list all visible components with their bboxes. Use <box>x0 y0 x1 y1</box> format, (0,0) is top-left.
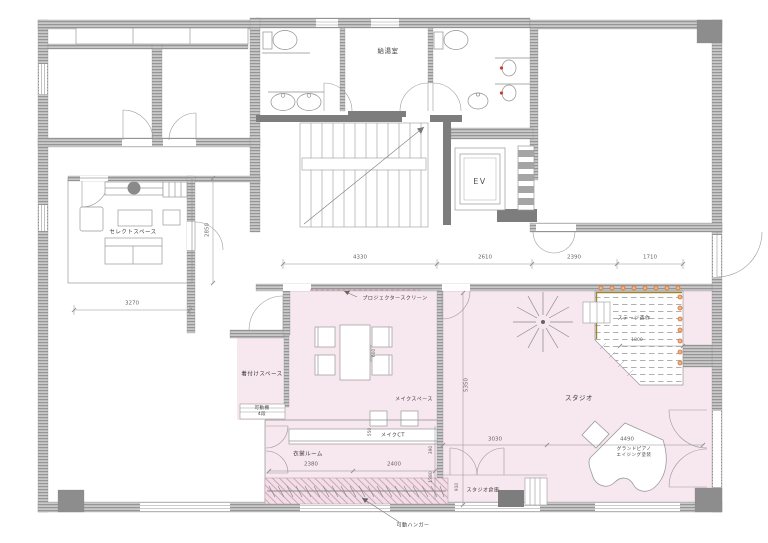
dim-1800: 1800 <box>631 339 642 344</box>
label-movable-shelf: 可動棚 <box>255 407 270 412</box>
coffee-table <box>118 210 152 226</box>
label-projector-screen: プロジェクタースクリーン <box>362 297 427 302</box>
dim-3270: 3270 <box>125 301 139 307</box>
dim-4490: 4490 <box>620 437 634 443</box>
label-shelf-tiers: 4段 <box>258 413 266 418</box>
dim-5350: 5350 <box>464 378 470 392</box>
urinal-1 <box>502 60 516 76</box>
dim-910: 910 <box>456 483 461 492</box>
staircase <box>300 123 428 227</box>
dim-1710: 1710 <box>643 255 657 261</box>
dim-2400: 2400 <box>387 462 401 468</box>
makeup-counter <box>289 429 437 444</box>
dim-600: 600 <box>373 349 378 358</box>
room-label-storage: スタジオ倉庫 <box>466 489 499 494</box>
room-label-makeup-space: メイクスペース <box>395 398 433 403</box>
dim-2390: 2390 <box>567 255 581 261</box>
label-movable-hanger: 可動ハンガー <box>396 524 429 529</box>
dim-2380: 2380 <box>304 462 318 468</box>
basin-tap-1 <box>281 94 285 98</box>
room-label-costume: 衣裳ルーム <box>293 452 323 458</box>
floor-plan: 給湯室 EV セレクトスペース 着付けスペース 可動棚 4段 衣裳ルーム メイク… <box>0 0 768 543</box>
armchair <box>80 207 103 231</box>
sofa <box>105 238 162 264</box>
dim-4330: 4330 <box>353 255 367 261</box>
label-stage: ステージ造作 <box>618 317 651 322</box>
toilet-bowl-2 <box>444 31 468 50</box>
room-label-dressing: 着付けスペース <box>241 372 282 378</box>
urinal-valve-1 <box>500 66 503 69</box>
elevator-shaft <box>455 146 534 210</box>
floor-plan-drawing <box>0 0 768 543</box>
dim-390: 390 <box>430 446 435 455</box>
movable-hanger-zone <box>265 478 448 522</box>
toilet-tank-2 <box>434 32 443 49</box>
stool <box>370 411 387 426</box>
closet-band <box>76 28 248 44</box>
room-label-select-space: セレクトスペース <box>109 230 156 236</box>
dim-1380: 1380 <box>430 471 435 482</box>
urinal-2 <box>502 85 516 101</box>
dim-3030: 3030 <box>488 437 502 443</box>
label-piano-note: エイジング塗装 <box>617 454 652 459</box>
basin-tap-2 <box>307 94 311 98</box>
dim-550: 550 <box>369 428 374 437</box>
side-table <box>163 210 180 225</box>
toilet-bowl-1 <box>273 31 297 50</box>
stage-steps <box>583 302 610 323</box>
toilet-tank-1 <box>263 32 272 49</box>
room-label-elevator: EV <box>473 178 487 186</box>
label-grand-piano: グランドピアノ <box>617 448 652 453</box>
dim-2610: 2610 <box>478 255 492 261</box>
urinal-valve-2 <box>500 91 503 94</box>
room-label-studio: スタジオ <box>565 395 593 402</box>
table <box>340 325 370 380</box>
basin-tap-3 <box>476 93 479 96</box>
dim-2850: 2850 <box>205 223 211 237</box>
label-makeup-counter: メイクCT <box>381 434 405 439</box>
room-label-kitchenette: 給湯室 <box>378 48 399 55</box>
display-monitor <box>128 182 141 195</box>
sanitary-fixtures <box>262 31 530 111</box>
stool <box>401 411 418 426</box>
